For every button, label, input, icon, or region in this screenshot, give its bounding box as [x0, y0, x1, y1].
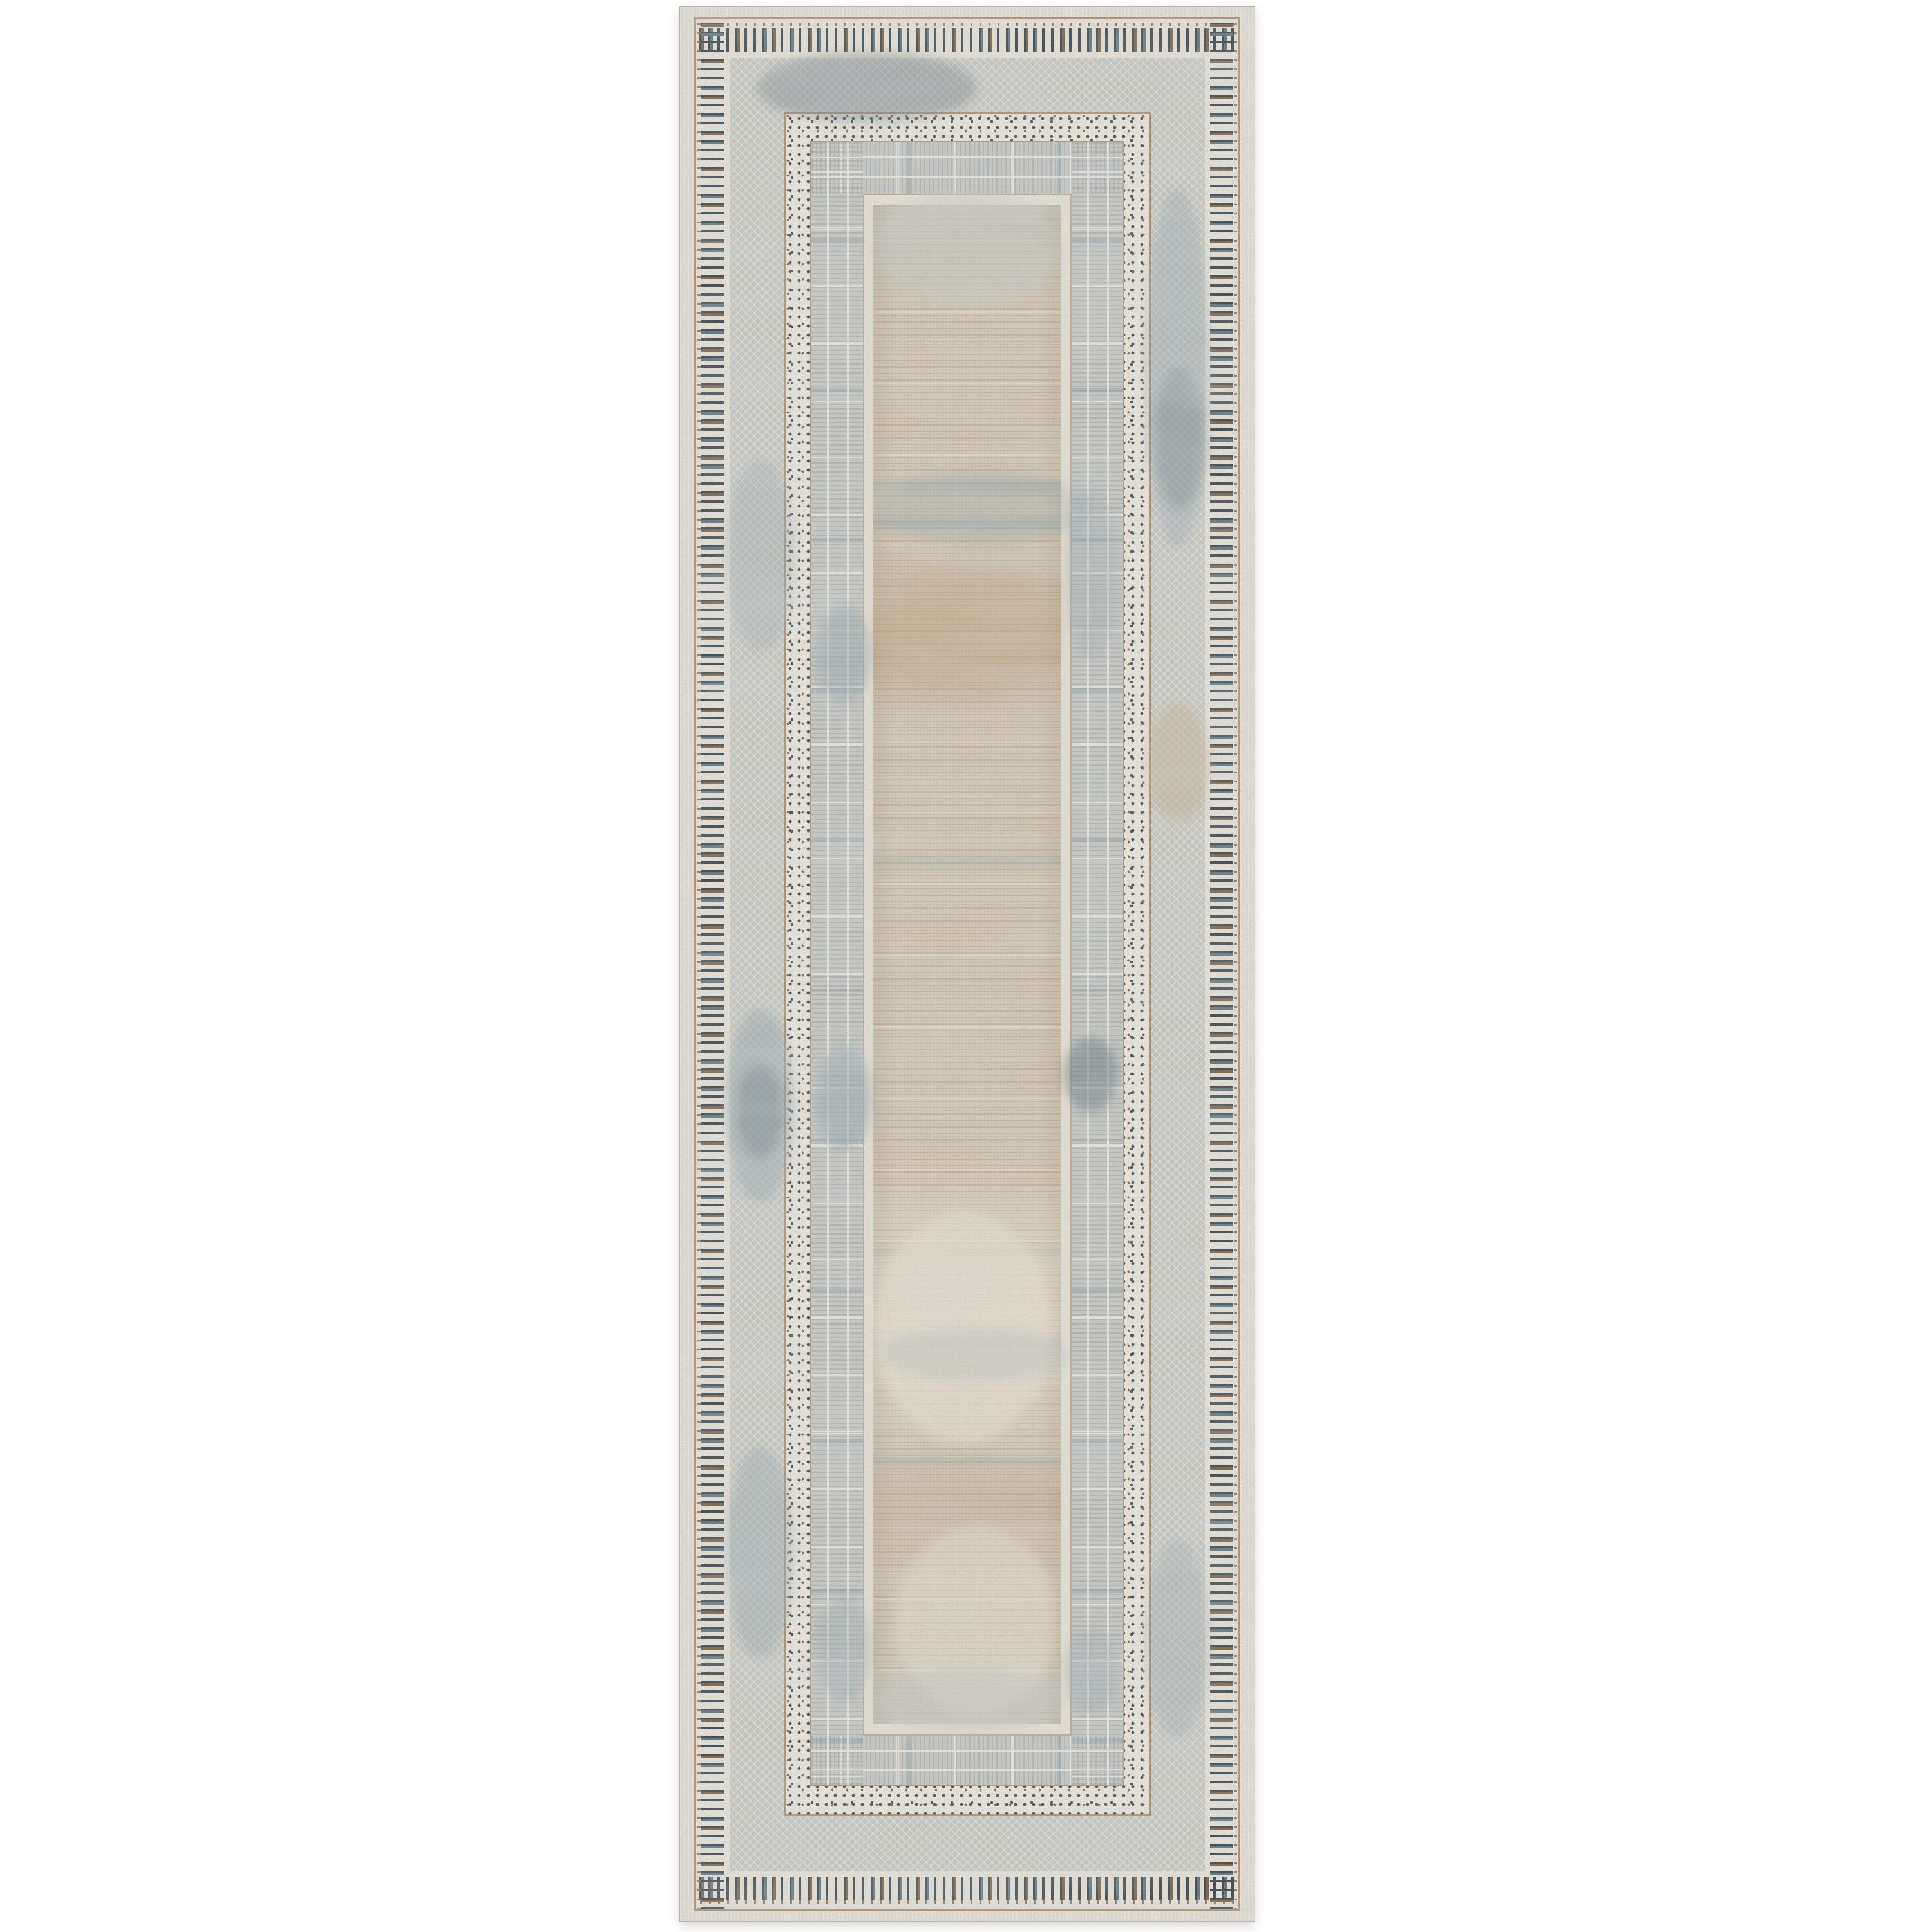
- dash-border-right: [1205, 19, 1238, 1909]
- hatched-band-left: [811, 142, 863, 1785]
- product-photo-background: [0, 0, 1932, 1932]
- dash-stripe-border: [694, 17, 1240, 1911]
- herringbone-band: [730, 58, 1205, 1871]
- hatched-band-right: [1072, 142, 1123, 1785]
- center-field: [873, 205, 1061, 1724]
- rug-image: [680, 7, 1255, 1921]
- dash-border-left: [696, 19, 730, 1909]
- dotted-border: [784, 112, 1151, 1816]
- hatched-band: [810, 141, 1124, 1786]
- dash-border-bottom: [696, 1871, 1238, 1909]
- dash-border-top: [696, 19, 1238, 58]
- cream-inner-frame: [863, 194, 1072, 1736]
